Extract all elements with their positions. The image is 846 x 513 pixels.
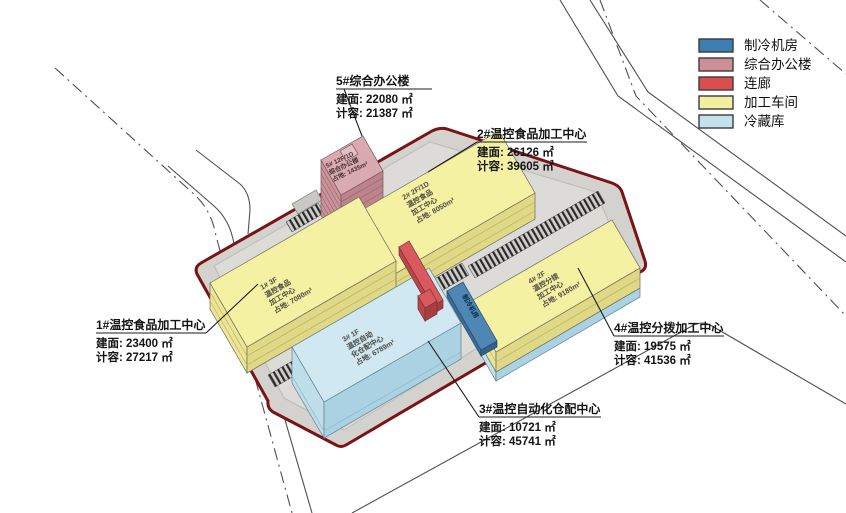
b2-callout-ratio: 计容: 39605 ㎡ bbox=[477, 159, 554, 173]
legend-swatch-office bbox=[699, 58, 733, 71]
b4-callout-title: 4#温控分拨加工中心 bbox=[614, 320, 723, 335]
b4-callout-built: 建面: 19575 ㎡ bbox=[614, 339, 691, 353]
legend-label-chiller: 制冷机房 bbox=[744, 38, 798, 53]
legend-swatch-chiller bbox=[699, 39, 733, 52]
legend-label-cold: 冷藏库 bbox=[744, 114, 785, 129]
b5-callout-built: 建面: 22080 ㎡ bbox=[336, 92, 413, 106]
b4-callout-ratio: 计容: 41536 ㎡ bbox=[614, 353, 691, 367]
legend-label-corridor: 连廊 bbox=[744, 75, 771, 91]
site-plan-canvas: 5# 12F/1D 综合办公楼 占地: 1435m² 2# 2F/1D 温控食品… bbox=[0, 0, 846, 513]
b3-callout-title: 3#温控自动化仓配中心 bbox=[479, 401, 600, 416]
axonometric-site-plan: 5# 12F/1D 综合办公楼 占地: 1435m² 2# 2F/1D 温控食品… bbox=[0, 0, 846, 513]
b5-callout-title: 5#综合办公楼 bbox=[336, 73, 409, 88]
legend-swatch-cold bbox=[699, 115, 733, 128]
legend: 制冷机房 综合办公楼 连廊 加工车间 冷藏库 bbox=[699, 38, 812, 129]
callout-b5: 5#综合办公楼 建面: 22080 ㎡ 计容: 21387 ㎡ bbox=[336, 73, 432, 136]
legend-label-workshop: 加工车间 bbox=[744, 94, 798, 110]
b3-callout-ratio: 计容: 45741 ㎡ bbox=[479, 434, 556, 448]
legend-swatch-corridor bbox=[699, 77, 733, 90]
b3-callout-built: 建面: 10721 ㎡ bbox=[479, 420, 556, 434]
b2-callout-title: 2#温控食品加工中心 bbox=[477, 126, 586, 141]
b5-callout-ratio: 计容: 21387 ㎡ bbox=[336, 106, 413, 120]
b1-callout-ratio: 计容: 27217 ㎡ bbox=[96, 350, 173, 364]
b1-callout-built: 建面: 23400 ㎡ bbox=[96, 336, 173, 350]
legend-label-office: 综合办公楼 bbox=[744, 57, 812, 72]
legend-swatch-workshop bbox=[699, 96, 733, 109]
left-road-edge-2 bbox=[196, 150, 250, 234]
b2-callout-built: 建面: 26126 ㎡ bbox=[477, 145, 554, 159]
b1-callout-title: 1#温控食品加工中心 bbox=[96, 317, 205, 332]
